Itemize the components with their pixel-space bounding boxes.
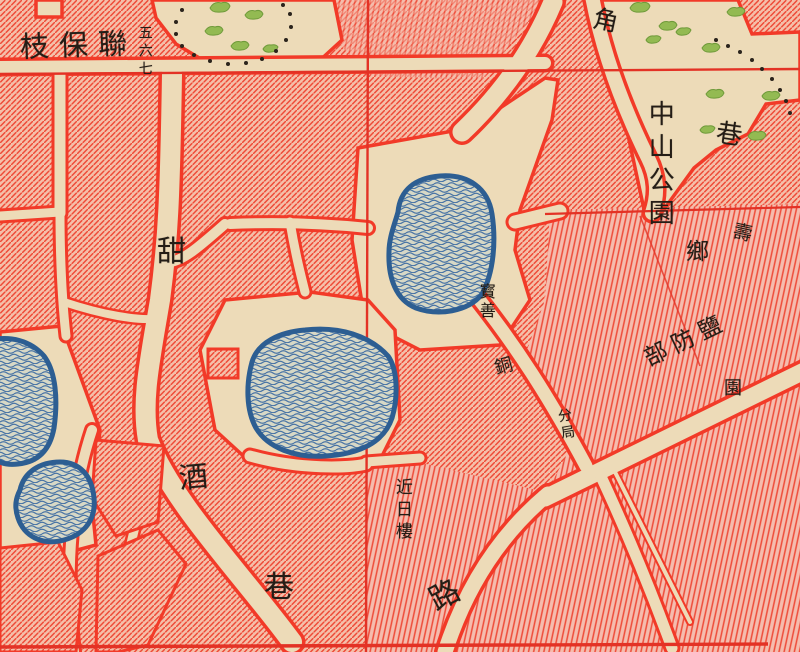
pond-left-lower: [16, 462, 94, 542]
pond-lower-center: [248, 329, 396, 456]
block-notch: [36, 0, 62, 17]
historical-map: 枝保聯 五六七 角 中山公園 巷 壽 鄉 部防鹽 園 寳善 銅 分局 甜 酒 巷…: [0, 0, 800, 652]
pond-left-edge: [0, 339, 56, 465]
map-canvas: [0, 0, 800, 652]
pond-upper-center: [389, 176, 494, 312]
